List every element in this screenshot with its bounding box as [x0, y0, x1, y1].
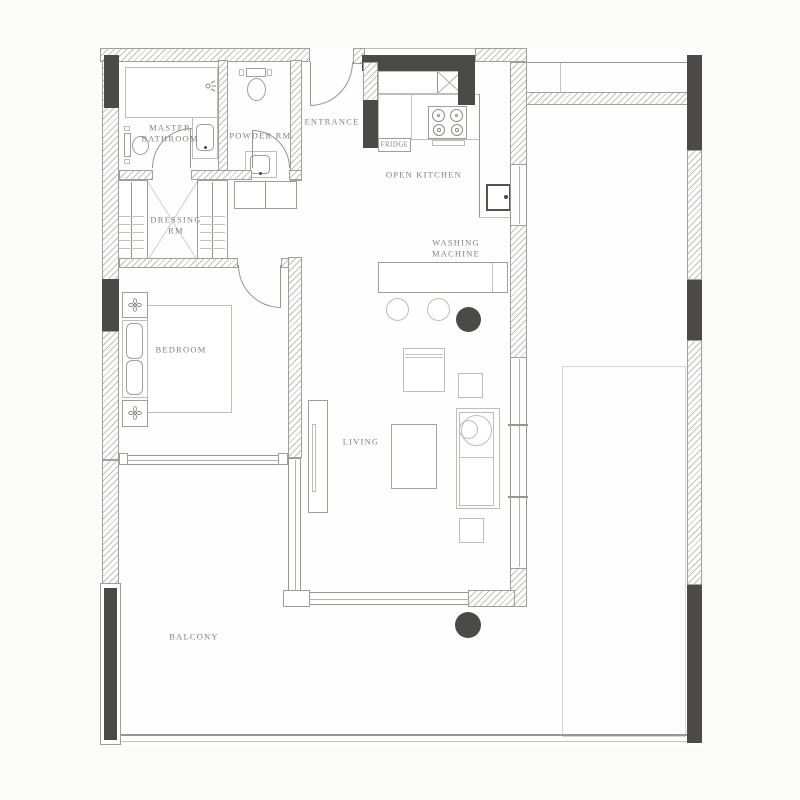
island-divider	[492, 263, 493, 292]
window-end-cap	[119, 453, 128, 465]
west-wall-column	[104, 55, 119, 108]
sofa-divider	[460, 457, 493, 458]
terrace-edge-mullion	[560, 63, 561, 92]
coffee-table	[391, 424, 437, 489]
balcony-railing-outer	[118, 734, 688, 736]
living-west-window	[288, 458, 301, 592]
east-wall-dark	[687, 280, 702, 340]
hanger-line	[119, 240, 144, 241]
room-label-master-bathroom: MASTER BATHROOM	[141, 123, 198, 146]
kitchen-north-dark-return	[458, 55, 475, 105]
kitchen-east-wall	[510, 62, 527, 165]
hanger-line	[119, 248, 144, 249]
plant-icon	[127, 405, 143, 421]
label-line: RM	[150, 226, 201, 237]
balcony-planter-dark	[455, 612, 481, 638]
room-label-bedroom: BEDROOM	[156, 344, 207, 355]
toilet-button	[267, 69, 272, 76]
terrace-north-edge	[527, 62, 687, 63]
room-label-washing-machine: WASHING MACHINE	[432, 238, 480, 261]
stool-icon	[427, 298, 450, 321]
label-line: DRESSING	[150, 215, 201, 226]
stool-dark-icon	[456, 307, 481, 332]
entry-east-wall	[363, 62, 378, 102]
bed-duvet	[147, 305, 232, 413]
east-wall-hatch	[687, 150, 702, 280]
west-wall-balcony	[102, 460, 119, 587]
door-leaf	[310, 62, 311, 106]
room-label-dressing-room: DRESSING RM	[150, 215, 201, 238]
pillow	[126, 323, 143, 359]
stove-burner-icon	[433, 124, 445, 136]
kitchen-east-wall	[510, 225, 527, 358]
room-label-balcony: BALCONY	[169, 631, 219, 642]
hanger-line	[200, 248, 225, 249]
plant-icon	[127, 297, 143, 313]
stove-burner-icon	[432, 109, 445, 122]
side-table	[458, 373, 483, 398]
toilet-icon	[246, 68, 266, 77]
shoe-cabinet-divider	[265, 182, 266, 208]
toilet-bowl	[247, 78, 266, 101]
living-south-window	[287, 592, 470, 605]
side-table	[459, 518, 484, 543]
hanger-line	[119, 232, 144, 233]
hanger-line	[119, 216, 144, 217]
tv-console-slot	[312, 424, 316, 492]
label-line: WASHING	[432, 238, 480, 249]
counter-divider	[411, 95, 412, 139]
label-line: MACHINE	[432, 249, 480, 260]
stove-burner-icon	[450, 109, 463, 122]
room-label-open-kitchen: OPEN KITCHEN	[386, 169, 462, 180]
living-sw-corner-box	[283, 590, 310, 607]
wardrobe-rail-icon	[131, 182, 132, 261]
fridge-label: FRIDGE	[381, 140, 409, 149]
bath-south-wall	[119, 170, 153, 180]
label-line: MASTER	[141, 123, 198, 134]
hanger-line	[119, 224, 144, 225]
toilet-icon	[124, 133, 131, 157]
living-east-window	[510, 357, 527, 569]
hanger-line	[200, 216, 225, 217]
toilet-button	[239, 69, 244, 76]
wardrobe-rail-icon	[212, 182, 213, 261]
room-label-living: LIVING	[343, 436, 379, 447]
chair-back-line	[405, 357, 443, 358]
island-counter	[378, 262, 508, 293]
bath-south-wall	[289, 170, 302, 180]
terrace-north-wall	[525, 92, 688, 105]
kitchen-east-window	[510, 164, 527, 226]
bath-south-wall	[191, 170, 252, 180]
west-wall-dark-mid	[102, 279, 119, 331]
counter-return-end	[479, 217, 510, 218]
stove-burner-icon	[451, 124, 463, 136]
shower-head-icon	[202, 78, 218, 94]
toilet-button	[124, 126, 130, 131]
bedroom-living-wall	[288, 257, 302, 458]
floor-plan: FRIDGE	[0, 0, 800, 800]
label-line: BATHROOM	[141, 134, 198, 145]
west-wall-lower	[102, 331, 119, 460]
fridge: FRIDGE	[378, 138, 411, 152]
east-wall-dark	[687, 55, 702, 150]
window-mullion	[508, 424, 528, 426]
window-end-cap	[278, 453, 288, 465]
bedroom-south-window	[120, 455, 287, 465]
faucet-dot	[259, 172, 262, 175]
hanger-line	[200, 240, 225, 241]
toilet-button	[124, 159, 130, 164]
top-wall-west	[100, 48, 310, 62]
washing-machine-knob	[504, 195, 508, 199]
top-wall-east	[475, 48, 527, 62]
room-label-powder-room: POWDER RM.	[229, 130, 294, 141]
dressing-south-wall	[119, 258, 238, 268]
stove-handle	[432, 140, 465, 146]
west-pier-dark	[104, 588, 117, 740]
pillow	[126, 360, 143, 395]
room-label-entrance: ENTRANCE	[305, 116, 360, 127]
living-south-wall	[468, 590, 515, 607]
tv-console	[308, 400, 328, 513]
hanger-line	[200, 224, 225, 225]
bath-powder-divider-wall	[218, 60, 228, 181]
powder-east-wall	[290, 60, 302, 181]
entry-east-wall-dark	[363, 100, 378, 148]
balcony-railing-inner	[118, 741, 688, 742]
east-wall-hatch	[687, 340, 702, 585]
terrace-inner-outline	[562, 366, 686, 737]
sofa-round-cushion-inner	[459, 420, 478, 439]
stool-icon	[386, 298, 409, 321]
door-leaf	[280, 265, 281, 308]
hanger-line	[200, 232, 225, 233]
chair-back-line	[405, 354, 443, 355]
counter-return-edge	[479, 94, 480, 218]
window-mullion	[508, 496, 528, 498]
east-wall-dark	[687, 585, 702, 743]
faucet-dot	[204, 146, 207, 149]
